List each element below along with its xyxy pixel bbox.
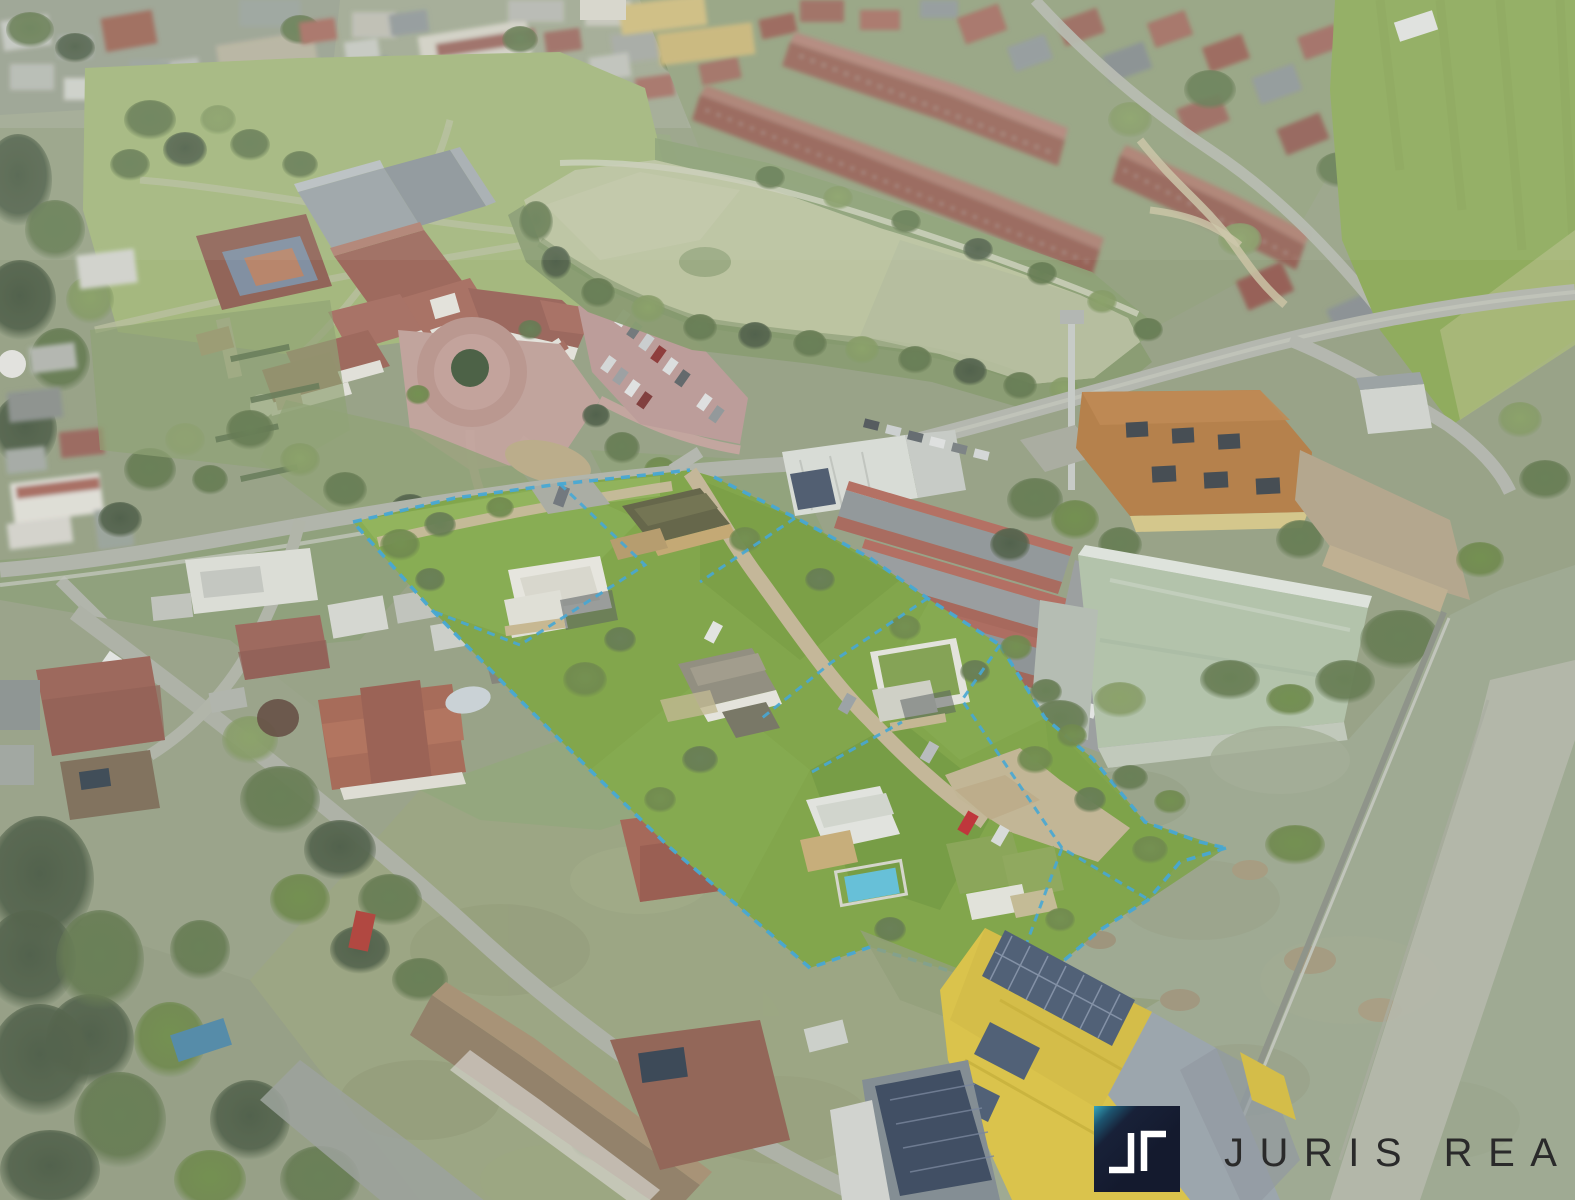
svg-text:JURIS REAL: JURIS REAL — [1224, 1131, 1575, 1175]
